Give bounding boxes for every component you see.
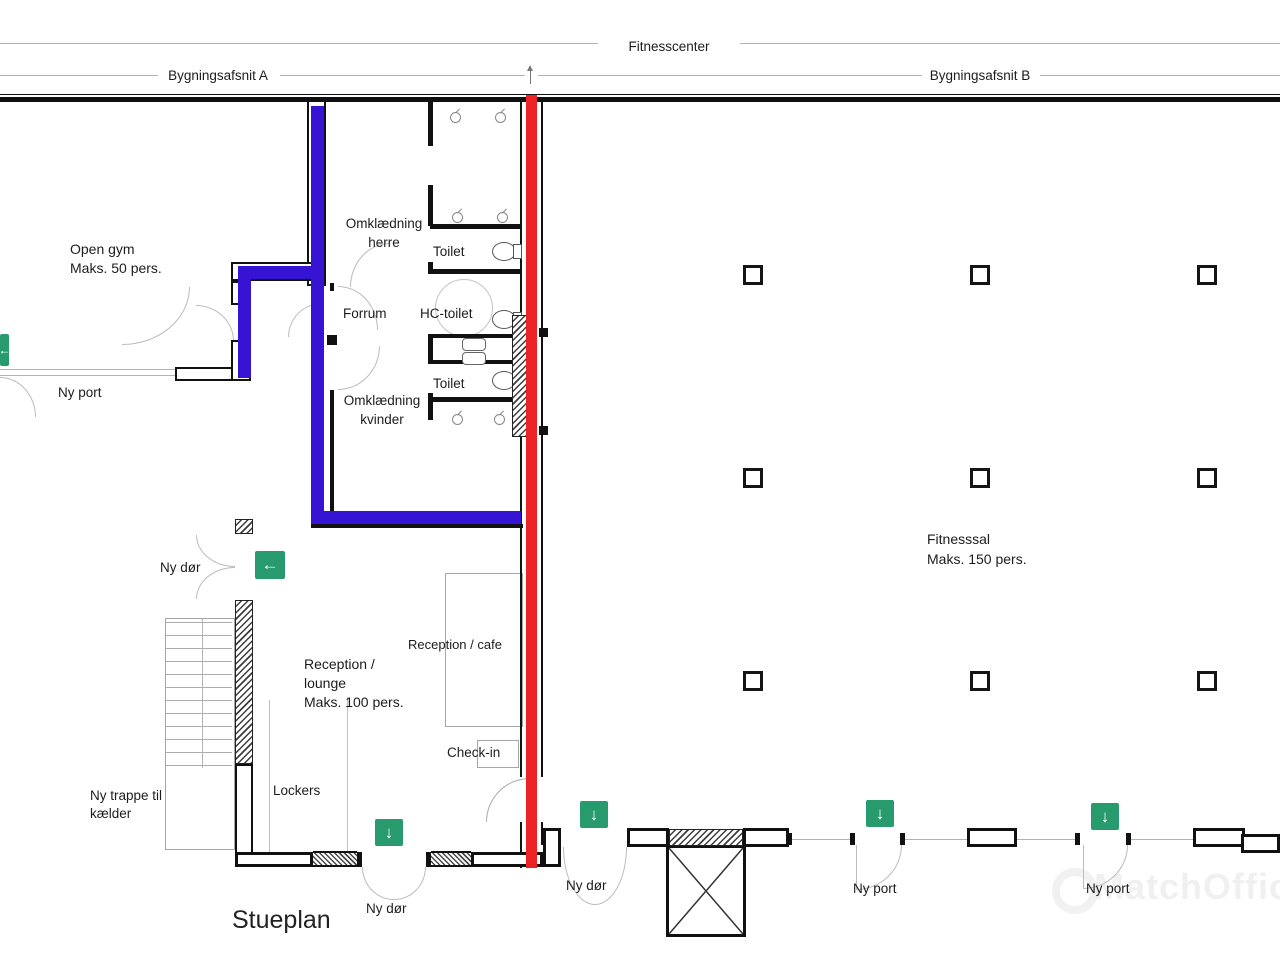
interior-wall	[430, 269, 522, 274]
wall-stub	[539, 426, 548, 435]
door-swing-arc	[196, 567, 235, 599]
column-square	[743, 671, 763, 691]
interior-wall	[330, 283, 334, 291]
exit-sign-south-3: ↓	[866, 800, 894, 827]
door-swing-arc	[595, 847, 627, 905]
hatched-wall	[235, 519, 253, 534]
room-label-omk-kvinder: Omklædning	[330, 393, 434, 410]
window-segment	[431, 851, 471, 867]
shower-icon	[495, 112, 506, 123]
hatched-wall	[512, 315, 527, 437]
door-post	[787, 833, 792, 845]
exit-sign-west-door: ←	[255, 551, 285, 579]
opening-line	[0, 369, 176, 370]
interior-wall	[330, 390, 334, 528]
fitnesscenter-label: Fitnesscenter	[600, 39, 738, 56]
column-square	[1197, 265, 1217, 285]
room-label-open-gym-cap: Maks. 50 pers.	[70, 260, 162, 278]
outer-wall-bottom	[235, 852, 313, 867]
room-label-reception-cap: Maks. 100 pers.	[304, 694, 404, 712]
door-post	[1075, 833, 1080, 845]
blue-escape-route	[238, 266, 251, 378]
opening-line	[0, 375, 176, 376]
shower-icon	[450, 112, 461, 123]
exit-sign-south-2: ↓	[580, 801, 608, 828]
column-square	[743, 265, 763, 285]
door-swing-arc	[338, 346, 380, 390]
door-label-ny-door-south-1: Ny dør	[366, 901, 407, 918]
column-square	[970, 671, 990, 691]
exit-arrow-icon: ↓	[1101, 807, 1110, 827]
annotation-line	[0, 75, 158, 76]
exit-arrow-icon: ↓	[876, 804, 885, 824]
room-label-forrum: Forrum	[343, 306, 387, 323]
shaft-crossed-box	[666, 845, 746, 937]
outer-wall-bottom	[627, 828, 669, 847]
column-square	[1197, 468, 1217, 488]
stairs-rail	[202, 618, 203, 768]
exit-arrow-icon: ←	[262, 555, 279, 575]
column-square	[970, 265, 990, 285]
red-section-line	[526, 95, 537, 868]
blue-escape-route	[311, 511, 521, 524]
door-label-ny-door-west: Ny dør	[160, 560, 201, 577]
interior-wall	[430, 397, 522, 402]
stairs	[165, 618, 235, 850]
shower-icon	[494, 414, 505, 425]
door-post	[1126, 833, 1131, 845]
reception-cafe-label: Reception / cafe	[408, 637, 502, 653]
outer-wall-jog	[543, 828, 561, 867]
door-post	[357, 852, 362, 867]
room-label-fitnesssal: Fitnesssal	[927, 531, 990, 549]
check-in-label: Check-in	[447, 745, 500, 762]
interior-wall	[430, 224, 522, 229]
floor-plan: Fitnesscenter Bygningsafsnit A Bygningsa…	[0, 0, 1280, 960]
room-label-omk-herre: Omklædning	[332, 216, 436, 233]
room-label-fitnesssal-cap: Maks. 150 pers.	[927, 551, 1027, 569]
door-swing-arc	[122, 287, 190, 345]
outer-wall-bottom	[967, 828, 1017, 847]
door-label-ny-port-west: Ny port	[58, 385, 102, 402]
exit-sign-south-4: ↓	[1091, 803, 1119, 830]
blue-escape-route	[311, 106, 324, 524]
outer-wall-top	[0, 97, 1280, 102]
door-post	[850, 833, 855, 845]
hatched-wall	[669, 829, 743, 846]
interior-wall	[235, 764, 253, 855]
door-swing-arc	[196, 535, 235, 567]
shower-icon	[497, 212, 508, 223]
exit-arrow-icon: ←	[0, 343, 11, 357]
exit-arrow-icon: ↓	[385, 823, 394, 843]
annotation-line	[280, 75, 525, 76]
stairs-label: Ny trappe til	[90, 788, 162, 805]
tick-line	[530, 71, 531, 84]
outer-wall-bottom	[1193, 828, 1245, 847]
door-swing-arc	[394, 867, 426, 900]
interior-wall	[175, 367, 233, 381]
annotation-line	[1040, 75, 1280, 76]
shower-icon	[452, 414, 463, 425]
urinal-icon	[462, 352, 486, 365]
window-segment	[313, 851, 357, 867]
room-label-reception: lounge	[304, 675, 346, 693]
exit-sign-south-1: ↓	[375, 819, 403, 846]
tick-arrow-icon	[527, 65, 533, 71]
wall-stub	[539, 328, 548, 337]
interior-wall	[428, 101, 433, 146]
exit-sign-left-edge: ←	[0, 334, 9, 366]
outer-wall-bottom	[743, 828, 789, 847]
annotation-line	[538, 75, 922, 76]
exit-arrow-icon: ↓	[590, 805, 599, 825]
wall-stub	[327, 335, 337, 345]
annotation-line	[740, 43, 1280, 44]
plan-title: Stueplan	[232, 906, 331, 935]
outer-wall-bottom	[1241, 834, 1280, 853]
urinal-icon	[462, 338, 486, 351]
interior-wall	[311, 524, 523, 528]
door-label-ny-door-south-2: Ny dør	[566, 878, 607, 895]
door-label-ny-port-south-1: Ny port	[853, 881, 897, 898]
door-swing-arc	[486, 778, 530, 822]
room-label-reception: Reception /	[304, 656, 375, 674]
section-a-label: Bygningsafsnit A	[158, 68, 278, 85]
door-post	[900, 833, 905, 845]
room-label-toilet-mid: Toilet	[433, 376, 465, 393]
stairs-label: kælder	[90, 806, 131, 823]
room-label-omk-kvinder: kvinder	[330, 412, 434, 429]
outer-wall-top	[0, 94, 1280, 95]
door-label-ny-port-south-2: Ny port	[1086, 881, 1130, 898]
door-swing-arc	[196, 305, 234, 341]
column-square	[1197, 671, 1217, 691]
room-label-open-gym: Open gym	[70, 241, 135, 259]
room-label-hc-toilet: HC-toilet	[420, 306, 473, 323]
corridor-wall-right	[541, 101, 543, 777]
section-b-label: Bygningsafsnit B	[920, 68, 1040, 85]
shower-icon	[452, 212, 463, 223]
column-square	[970, 468, 990, 488]
hatched-wall	[235, 600, 253, 764]
room-label-toilet-top: Toilet	[433, 244, 465, 261]
door-swing-arc	[563, 847, 595, 905]
door-swing-arc	[0, 377, 36, 417]
door-swing-arc	[362, 867, 394, 900]
lockers-label: Lockers	[273, 783, 320, 800]
room-label-omk-herre: herre	[332, 235, 436, 252]
annotation-line	[0, 43, 598, 44]
column-square	[743, 468, 763, 488]
toilet-icon	[513, 244, 522, 259]
corridor-wall-left	[520, 101, 522, 777]
